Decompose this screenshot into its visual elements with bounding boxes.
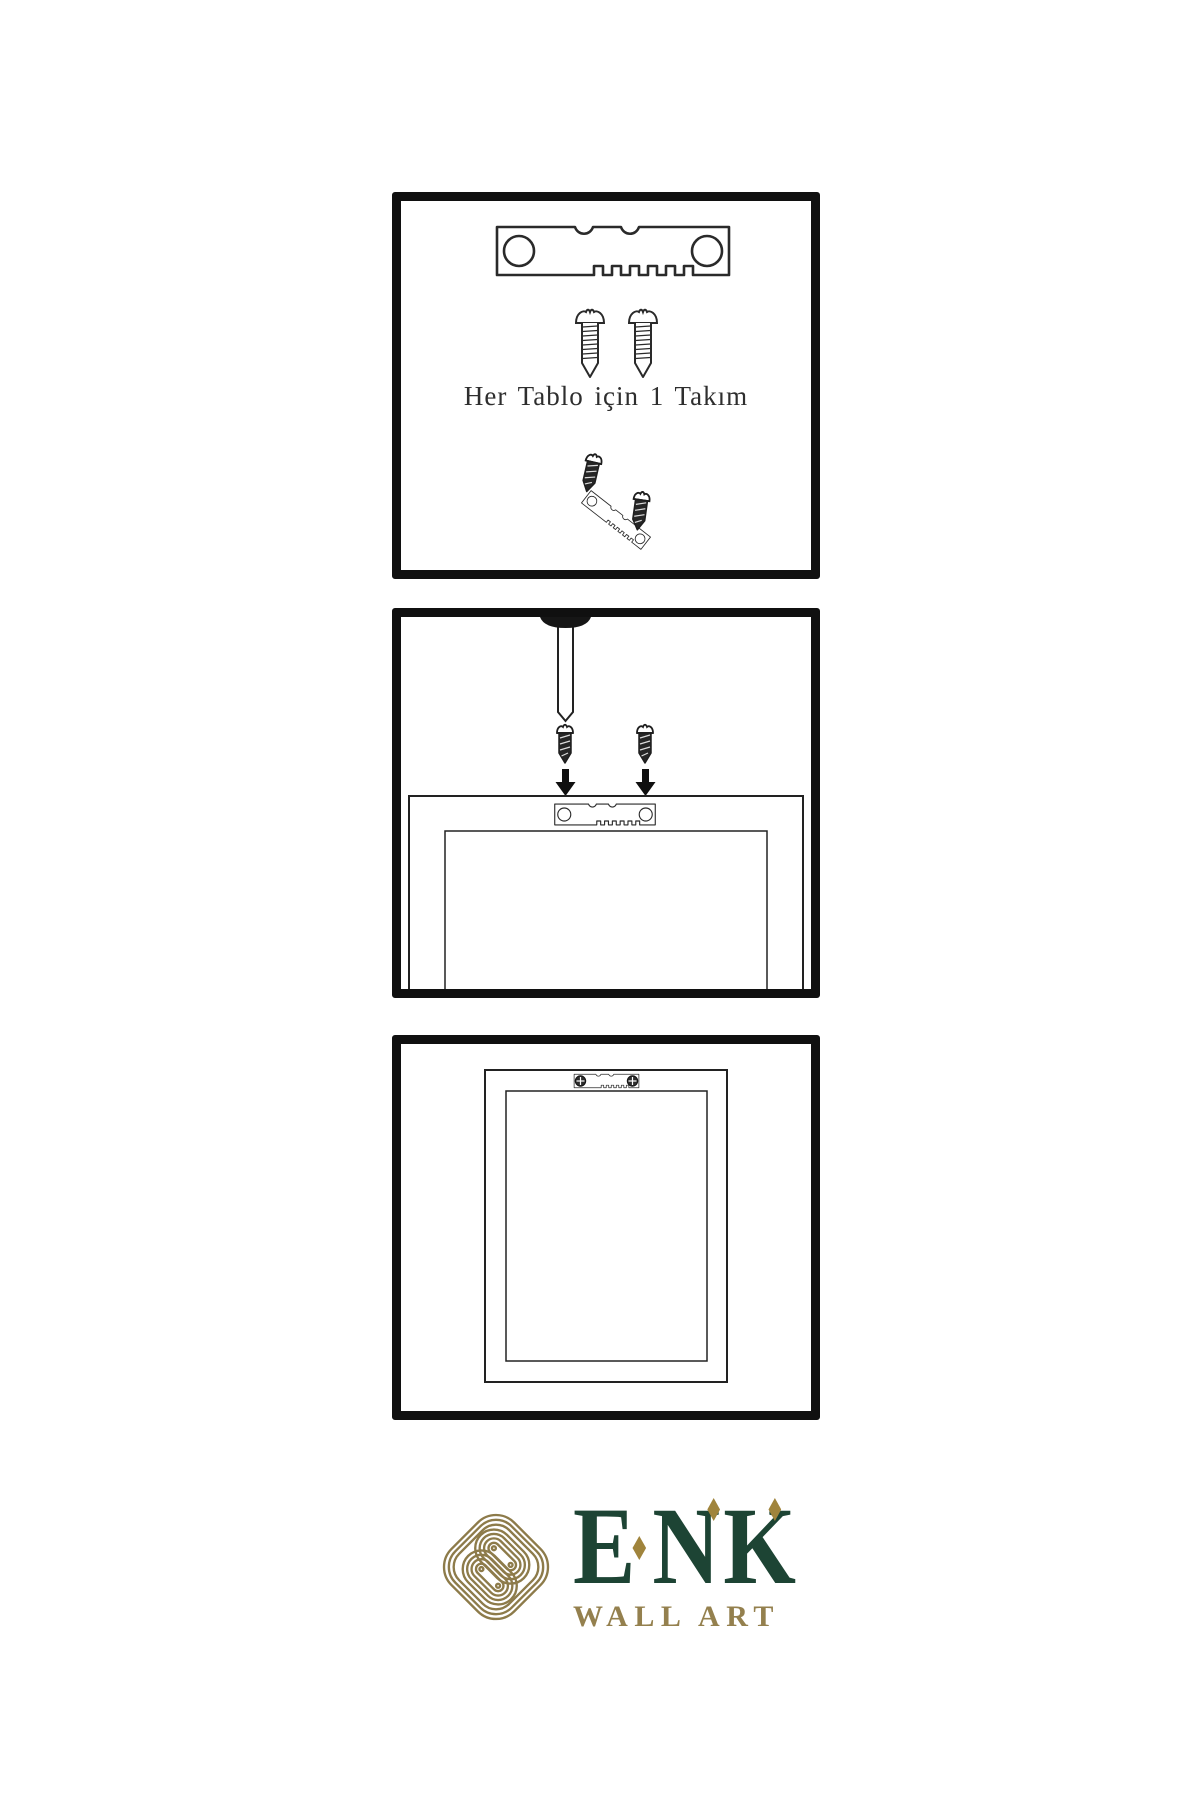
screw-dark-icon [637,725,653,763]
step1-hardware-kit-panel: Her Tablo için 1 Takım [392,192,820,579]
screw-dark-icon [557,725,573,763]
installed-screw-head [627,1076,637,1086]
knot-logo-icon [437,1500,555,1632]
down-arrow-icon [556,769,576,796]
kit-caption: Her Tablo için 1 Takım [392,381,820,412]
brand-letter: N [652,1485,720,1607]
brand-logo: ENK WALL ART [437,1498,835,1634]
nail-head [540,617,591,628]
brand-name: ENK [573,1498,796,1594]
step2-diagram [401,617,811,989]
sawtooth-hanger-icon [497,227,729,275]
frame-inner [506,1091,707,1361]
down-arrow-icon [636,769,656,796]
step2-mounting-panel [392,608,820,998]
instruction-sheet: Her Tablo için 1 Takım [0,0,1200,1800]
sawtooth-hanger-icon [555,804,656,825]
screw-icon [629,310,657,377]
screw-icon [576,310,604,377]
logo-text: ENK WALL ART [573,1498,835,1634]
screw-dark-icon [579,452,603,493]
nail-shaft [558,625,573,721]
frame-back-inner [445,831,767,989]
step3-hung-frame-panel [392,1035,820,1420]
installed-screw-head [575,1076,585,1086]
brand-letter: K [723,1485,796,1607]
brand-letter: E [573,1485,635,1607]
step3-diagram [401,1044,811,1411]
